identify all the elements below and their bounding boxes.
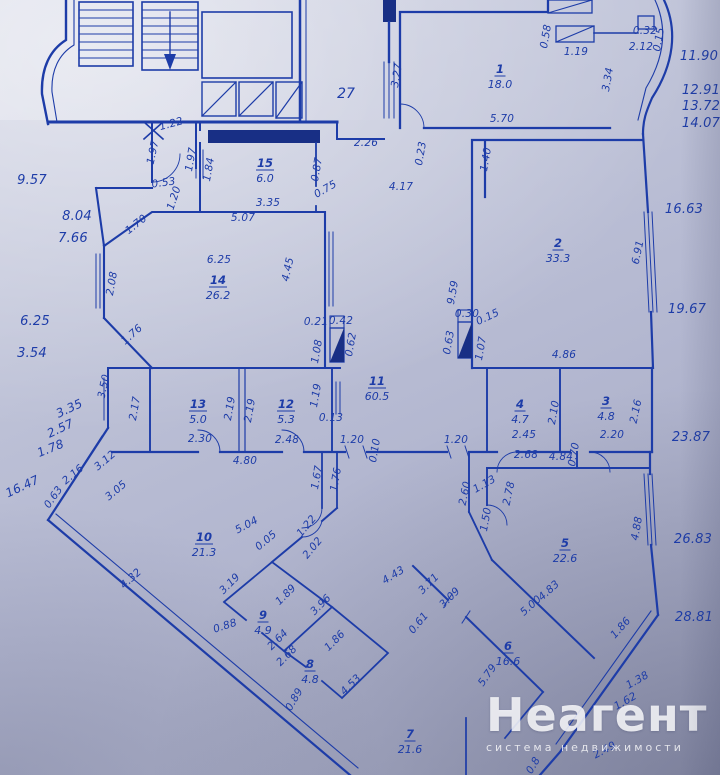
room-area: 18.0	[488, 78, 513, 91]
dimension-label: 2.17	[127, 395, 143, 421]
dimension-label: 0.58	[538, 23, 554, 49]
dimension-label: 0.87	[309, 156, 325, 182]
dimension-label: 0.21	[304, 316, 328, 328]
room-number: 1	[496, 62, 504, 76]
dimension-label: 0.05	[253, 528, 279, 553]
dimension-label: 23.87	[672, 430, 711, 445]
room-area: 4.8	[597, 410, 615, 423]
dimension-label: 3.09	[437, 585, 463, 611]
thick-wall	[383, 0, 396, 22]
dimension-label: 0.61	[406, 610, 431, 636]
dimension-label: 2.02	[300, 535, 325, 561]
dimension-label: 0.10	[367, 437, 383, 463]
dimension-label: 1.76	[328, 466, 344, 492]
room-number: 7	[406, 727, 414, 741]
dimension-label: 2.16	[628, 398, 645, 424]
dimension-label: 11.90	[680, 49, 718, 64]
dimension-label: 0.62	[343, 331, 359, 357]
room-area: 21.6	[398, 743, 423, 756]
room-area: 26.2	[206, 289, 231, 302]
dimension-label: 1.78	[35, 437, 66, 460]
room-number: 14	[210, 273, 226, 287]
room-area: 5.3	[277, 413, 295, 426]
dimension-label: 1.50	[478, 506, 494, 532]
dimension-label: 2.30	[188, 433, 212, 445]
dimension-label: 3.27	[389, 62, 405, 88]
dimension-label: 1.89	[273, 582, 299, 608]
walls	[42, 0, 672, 775]
plan-labels: 1.221.971.971.840.531.209.570.870.753.35…	[3, 23, 720, 775]
floor-plan-svg: 1.221.971.971.840.531.209.570.870.753.35…	[0, 0, 720, 775]
dimension-label: 4.80	[233, 455, 257, 467]
room-number: 10	[196, 530, 212, 544]
dimension-label: 28.81	[675, 610, 713, 625]
dimension-label: 2.48	[275, 434, 299, 446]
dimension-label: 16.63	[665, 202, 703, 217]
dimension-label: 0.63	[441, 330, 457, 356]
room-area: 21.3	[192, 546, 217, 559]
dimension-label: 26.83	[674, 532, 712, 547]
dimension-label: 1.19	[564, 46, 588, 58]
room-area: 5.0	[189, 413, 207, 426]
dimension-label: 5.70	[490, 113, 514, 125]
dimension-label: 4.86	[552, 349, 576, 361]
dimension-label: 14.07	[682, 116, 720, 131]
room-area: 6.0	[256, 172, 274, 185]
room-area: 16.6	[496, 655, 521, 668]
room-area: 22.6	[553, 552, 578, 565]
dimension-label: 13.72	[682, 99, 720, 114]
dimension-label: 2.20	[600, 429, 624, 441]
room-number: 11	[369, 374, 385, 388]
room-number: 5	[561, 536, 569, 550]
dimension-label: 4.43	[380, 564, 407, 587]
dimension-label: 1.38	[624, 669, 651, 692]
dimension-label: 1.08	[309, 338, 325, 364]
dimension-label: 2.78	[501, 480, 518, 506]
dimension-label: 3.54	[17, 346, 47, 361]
dimension-label: 4.45	[280, 256, 297, 282]
dimension-label: 2.45	[512, 429, 536, 441]
room-area: 60.5	[365, 390, 390, 403]
room-number: 13	[190, 397, 206, 411]
room-number: 9	[259, 608, 267, 622]
thick-wall	[208, 130, 320, 143]
room-number: 4	[515, 397, 524, 411]
dimension-label: 6.25	[20, 314, 50, 329]
dimension-label: 3.71	[416, 571, 442, 597]
dimension-label: 1.19	[308, 382, 324, 408]
dimension-label: 19.67	[668, 302, 707, 317]
dimension-label: 1.86	[608, 615, 633, 641]
dimension-label: 9.59	[445, 279, 461, 305]
dimension-label: 8.04	[62, 209, 92, 224]
room-number: 8	[306, 657, 314, 671]
dimension-label: 0.42	[329, 315, 353, 327]
dimension-label: 4.17	[389, 181, 413, 193]
dimension-label: 0.8	[524, 755, 543, 775]
dimension-label: 6.91	[630, 239, 647, 265]
room-area: 4.7	[511, 413, 529, 426]
door-arc	[400, 104, 424, 128]
dimension-label: 1.07	[473, 335, 489, 361]
dimension-label: 2.12	[629, 41, 653, 53]
dimension-label: 9.57	[17, 173, 47, 188]
room-number: 15	[257, 156, 273, 170]
dimension-label: 1.22	[158, 115, 185, 133]
dimension-label: 0.23	[413, 141, 429, 167]
dimension-label: 1.20	[444, 434, 468, 446]
dimension-label: 2.49	[591, 739, 618, 761]
dimension-label: 3.05	[103, 478, 129, 503]
dimension-label: 1.97	[145, 139, 162, 165]
dimension-label: 1.20	[165, 185, 184, 212]
dimension-label: 2.08	[104, 270, 120, 296]
room-area: 4.8	[301, 673, 319, 686]
dimension-label: 16.47	[3, 472, 41, 500]
room-number: 6	[504, 639, 512, 653]
blueprint-photo: 1.221.971.971.840.531.209.570.870.753.35…	[0, 0, 720, 775]
dimension-label: 12.91	[682, 83, 720, 98]
room-area: 33.3	[546, 252, 571, 265]
dimension-label: 4.53	[338, 672, 364, 698]
dimension-label: 0.88	[212, 617, 239, 636]
dimension-label: 2.26	[354, 137, 378, 149]
dimension-label: 7.66	[58, 231, 88, 246]
dimension-label: 3.19	[217, 571, 243, 597]
dimension-label: 2.68	[514, 449, 538, 461]
zone-label: 27	[337, 86, 355, 102]
dimension-label: 0.70	[566, 441, 582, 467]
dimension-label: 1.86	[322, 628, 348, 654]
dimension-label: 6.25	[207, 254, 231, 266]
dimension-label: 3.50	[96, 373, 113, 399]
dimension-label: 3.35	[256, 197, 280, 209]
dimension-label: 3.34	[600, 67, 616, 93]
room-number: 12	[278, 397, 294, 411]
dimension-label: 1.40	[478, 146, 494, 172]
dimension-label: 5.04	[233, 514, 260, 536]
dimension-label: 5.07	[231, 212, 255, 224]
dimension-label: 1.20	[340, 434, 364, 446]
dimension-label: 1.62	[612, 690, 639, 713]
dimension-label: 2.60	[457, 480, 474, 506]
dimension-label: 0.89	[283, 686, 306, 713]
dimension-label: 4.88	[629, 515, 645, 541]
dimension-label: 2.19	[222, 395, 238, 421]
room-number: 3	[602, 394, 610, 408]
dimension-label: 1.13	[471, 473, 498, 495]
dimension-label: 0.13	[319, 412, 343, 424]
dimension-label: 1.76	[119, 322, 145, 347]
room-area: 4.9	[254, 624, 272, 637]
room-number: 2	[554, 236, 562, 250]
